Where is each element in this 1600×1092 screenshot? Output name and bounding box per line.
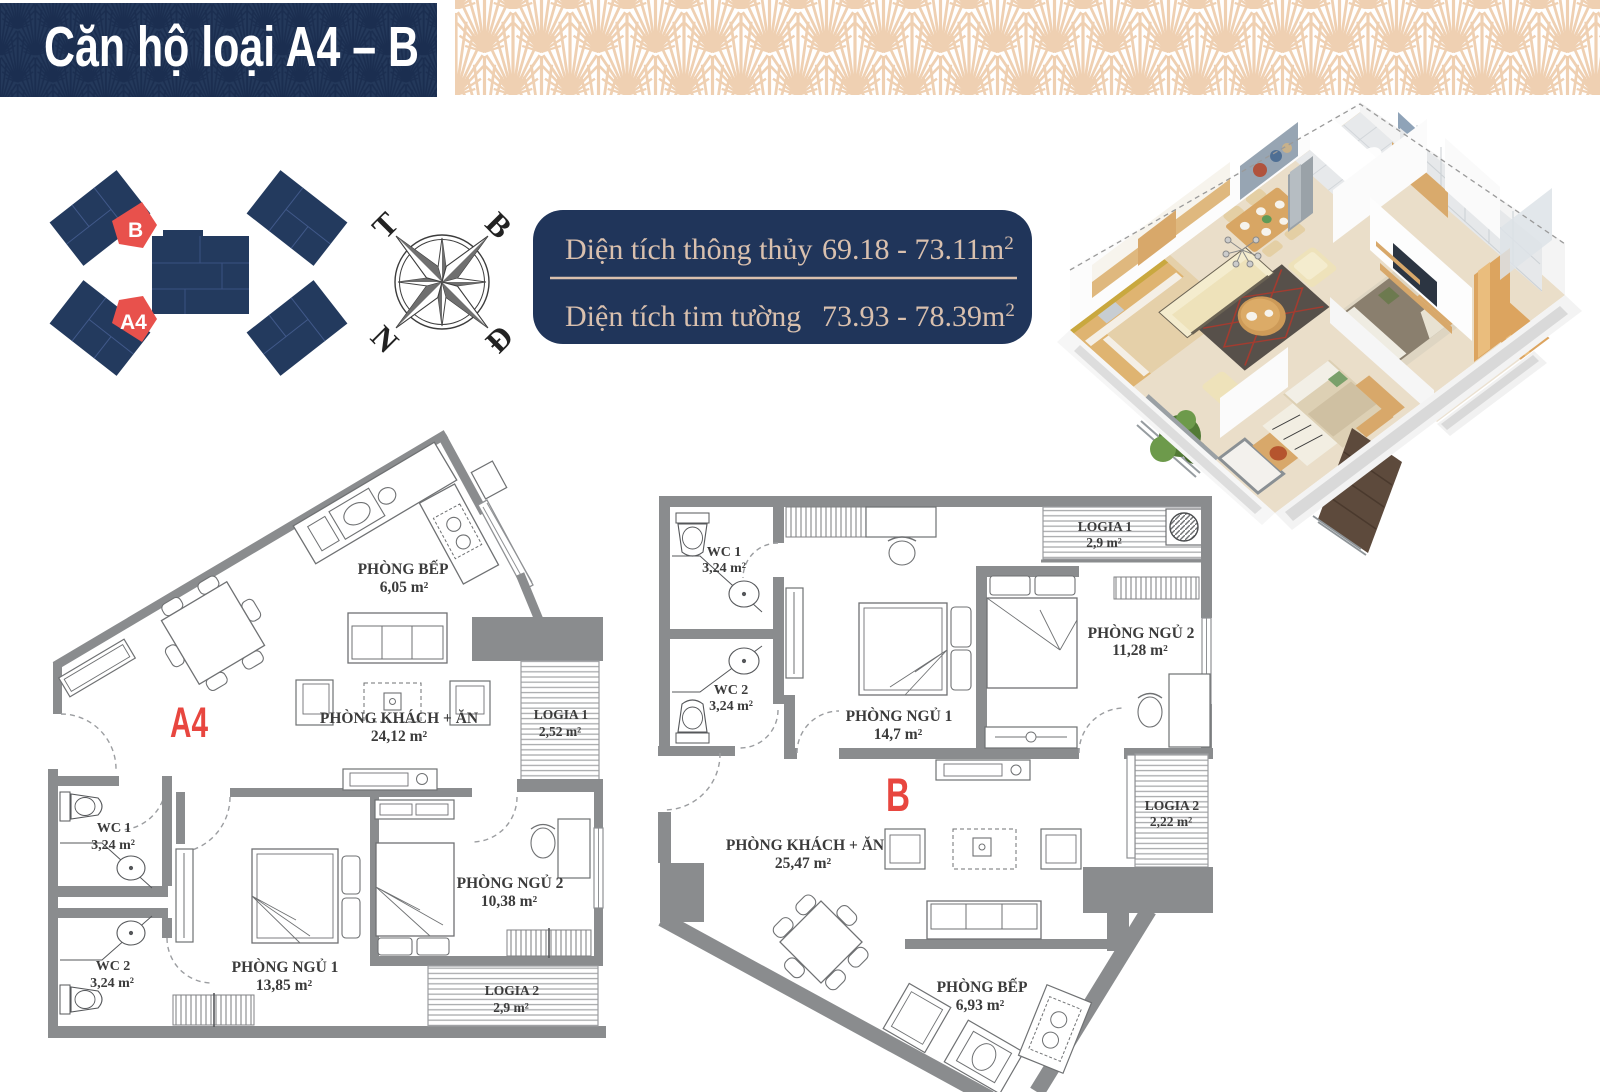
svg-text:69.18 - 73.11m2: 69.18 - 73.11m2	[822, 233, 1014, 266]
svg-text:LOGIA 2: LOGIA 2	[485, 983, 540, 998]
svg-text:Diện tích thông thủy: Diện tích thông thủy	[565, 233, 812, 266]
svg-text:2,52 m²: 2,52 m²	[539, 724, 581, 739]
svg-text:2,9 m²: 2,9 m²	[1086, 535, 1122, 550]
svg-text:3,24 m²: 3,24 m²	[90, 976, 134, 991]
svg-text:WC 1: WC 1	[707, 545, 742, 560]
svg-text:2,9 m²: 2,9 m²	[493, 1000, 529, 1015]
svg-text:PHÒNG NGỦ 1: PHÒNG NGỦ 1	[846, 708, 953, 725]
svg-text:PHÒNG KHÁCH + ĂN: PHÒNG KHÁCH + ĂN	[320, 710, 478, 727]
svg-text:PHÒNG NGỦ 2: PHÒNG NGỦ 2	[1088, 625, 1195, 642]
svg-text:11,28 m²: 11,28 m²	[1112, 642, 1168, 659]
svg-text:PHÒNG KHÁCH + ĂN: PHÒNG KHÁCH + ĂN	[726, 837, 884, 854]
svg-text:3,24 m²: 3,24 m²	[91, 838, 135, 853]
svg-text:A4: A4	[120, 311, 147, 334]
svg-text:WC 1: WC 1	[97, 821, 132, 836]
svg-text:B: B	[886, 768, 910, 821]
svg-text:6,05 m²: 6,05 m²	[380, 579, 429, 596]
svg-text:A4: A4	[170, 699, 208, 747]
svg-text:3,24 m²: 3,24 m²	[702, 561, 746, 576]
svg-text:WC 2: WC 2	[714, 683, 749, 698]
svg-text:6,93 m²: 6,93 m²	[956, 997, 1005, 1014]
svg-text:B: B	[128, 219, 143, 242]
svg-text:Căn hộ loại A4 – B: Căn hộ loại A4 – B	[44, 15, 419, 79]
svg-text:25,47 m²: 25,47 m²	[775, 855, 832, 872]
svg-text:2,22 m²: 2,22 m²	[1150, 814, 1192, 829]
svg-text:WC 2: WC 2	[96, 959, 131, 974]
svg-text:PHÒNG NGỦ 1: PHÒNG NGỦ 1	[232, 959, 339, 976]
svg-text:10,38 m²: 10,38 m²	[481, 893, 538, 910]
svg-text:LOGIA 1: LOGIA 1	[534, 707, 589, 722]
svg-text:24,12 m²: 24,12 m²	[371, 728, 428, 745]
svg-text:3,24 m²: 3,24 m²	[709, 699, 753, 714]
svg-text:LOGIA 2: LOGIA 2	[1145, 798, 1200, 813]
svg-text:PHÒNG NGỦ 2: PHÒNG NGỦ 2	[457, 875, 564, 892]
svg-text:14,7 m²: 14,7 m²	[874, 726, 923, 743]
svg-text:PHÒNG BẾP: PHÒNG BẾP	[937, 978, 1028, 996]
svg-text:73.93 - 78.39m2: 73.93 - 78.39m2	[822, 300, 1015, 333]
svg-text:Diện tích tim tường: Diện tích tim tường	[565, 300, 801, 333]
svg-text:LOGIA 1: LOGIA 1	[1078, 519, 1133, 534]
svg-text:PHÒNG BẾP: PHÒNG BẾP	[358, 560, 449, 578]
svg-text:13,85 m²: 13,85 m²	[256, 977, 313, 994]
